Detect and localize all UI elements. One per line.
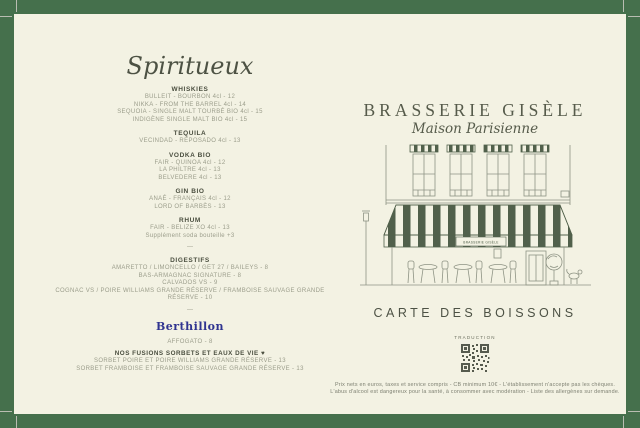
menu-item: FAIR - QUINOA 4cl - 12 [40, 160, 340, 168]
section-title-rhum: RHUM [40, 217, 340, 225]
berthillon-logo: Berthillon [40, 320, 340, 333]
legal-footnotes: Prix nets en euros, taxes et service com… [315, 382, 635, 396]
awning-sign-text: BRASSERIE GISÈLE [463, 240, 498, 245]
menu-item: CALVADOS VS - 9 [40, 280, 340, 288]
crop-mark [16, 0, 17, 12]
menu-item: LORD OF BARBÈS - 13 [40, 204, 340, 212]
section-title-gin: GIN BIO [40, 188, 340, 196]
menu-item: FAIR - BELIZE XO 4cl - 13 [40, 225, 340, 233]
terrace-chair [476, 261, 482, 283]
menu-item: COGNAC VS / POIRE WILLIAMS GRANDE RÉSERV… [40, 288, 340, 303]
terrace-table [419, 265, 437, 284]
qr-code-image [460, 343, 490, 373]
crop-mark [16, 416, 17, 428]
tree [546, 254, 562, 285]
awning: BRASSERIE GISÈLE [384, 205, 572, 247]
crop-mark [628, 411, 640, 412]
storefront-drawing: BRASSERIE GISÈLE [358, 143, 593, 291]
section-title-vodka: VODKA BIO [40, 152, 340, 160]
brand-subtitle: Maison Parisienne [315, 121, 635, 137]
menu-item: AMARETTO / LIMONCELLO / GET 27 / BAILEYS… [40, 265, 340, 273]
qr-label: TRADUCTION [315, 335, 635, 341]
menu-item: NIKKA - FROM THE BARREL 4cl - 14 [40, 102, 340, 110]
crop-mark [0, 16, 12, 17]
right-page: BRASSERIE GISÈLE Maison Parisienne [315, 14, 635, 396]
left-page: Spiritueux WHISKIES BULLEIT - BOURBON 4c… [40, 14, 340, 373]
menu-spread: Spiritueux WHISKIES BULLEIT - BOURBON 4c… [0, 0, 640, 428]
menu-item: AFFOGATO - 8 [40, 339, 340, 347]
terrace-table [454, 265, 472, 284]
lamppost [362, 211, 370, 285]
menu-item: BELVEDERE 4cl - 13 [40, 175, 340, 183]
crop-mark [0, 411, 12, 412]
menu-item: ANAÉ - FRANÇAIS 4cl - 12 [40, 196, 340, 204]
terrace-table [489, 265, 507, 284]
footnote-line-2: L'abus d'alcool est dangereux pour la sa… [315, 389, 635, 396]
menu-title: CARTE DES BOISSONS [315, 306, 635, 321]
section-title-tequila: TEQUILA [40, 130, 340, 138]
crop-mark [623, 0, 624, 12]
separator-dash: — [40, 244, 340, 251]
window-2 [447, 145, 475, 196]
cafe-storefront-illustration: BRASSERIE GISÈLE [315, 143, 635, 296]
brand-title: BRASSERIE GISÈLE [315, 100, 635, 120]
menu-item: SORBET POIRE ET POIRE WILLIAMS GRANDE RÉ… [40, 358, 340, 366]
terrace-chair [408, 261, 414, 283]
menu-item: LA PHILTRE 4cl - 13 [40, 167, 340, 175]
separator-dash: — [40, 307, 340, 314]
section-title-whiskies: WHISKIES [40, 86, 340, 94]
menu-item: BULLEIT - BOURBON 4cl - 12 [40, 94, 340, 102]
window-3 [484, 145, 512, 196]
section-title-digestifs: DIGESTIFS [40, 257, 340, 265]
dog [566, 269, 581, 284]
menu-page: Spiritueux WHISKIES BULLEIT - BOURBON 4c… [14, 14, 626, 414]
qr-code [315, 343, 635, 373]
spiritueux-heading: Spiritueux [40, 52, 340, 80]
terrace-chair [510, 261, 516, 283]
window-4 [521, 145, 549, 196]
cafe-door [526, 251, 546, 285]
terrace-chair [442, 261, 448, 283]
menu-item: SORBET FRAMBOISE ET FRAMBOISE SAUVAGE GR… [40, 366, 340, 374]
footnote-line-1: Prix nets en euros, taxes et service com… [315, 382, 635, 389]
menu-item: SEQUOIA - SINGLE MALT TOURBÉ BIO 4cl - 1… [40, 109, 340, 117]
fusions-title: NOS FUSIONS SORBETS ET EAUX DE VIE ♥ [40, 350, 340, 358]
menu-item: VECINDAD - REPOSADO 4cl - 13 [40, 138, 340, 146]
menu-item: BAS-ARMAGNAC SIGNATURE - 8 [40, 273, 340, 281]
menu-item: INDIGÈNE SINGLE MALT BIO 4cl - 15 [40, 117, 340, 125]
menu-item: Supplément soda bouteille +3 [40, 233, 340, 241]
crop-mark [623, 416, 624, 428]
window-1 [410, 145, 438, 196]
